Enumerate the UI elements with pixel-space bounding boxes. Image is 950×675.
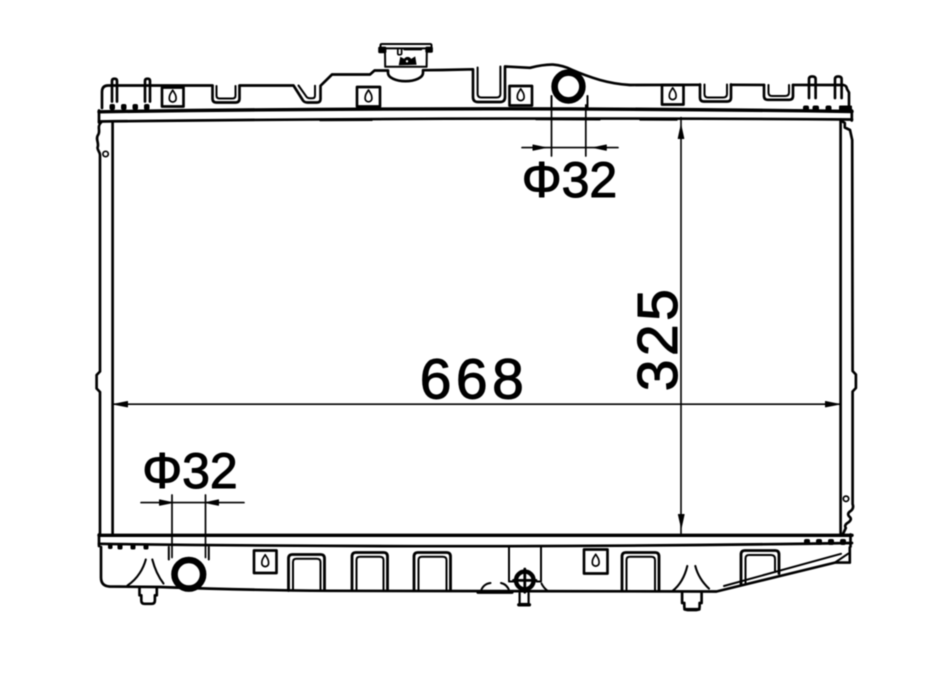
svg-text:Φ32: Φ32 (522, 152, 618, 208)
svg-text:325: 325 (626, 286, 690, 392)
svg-text:Φ32: Φ32 (142, 443, 238, 499)
svg-text:668: 668 (420, 348, 529, 412)
